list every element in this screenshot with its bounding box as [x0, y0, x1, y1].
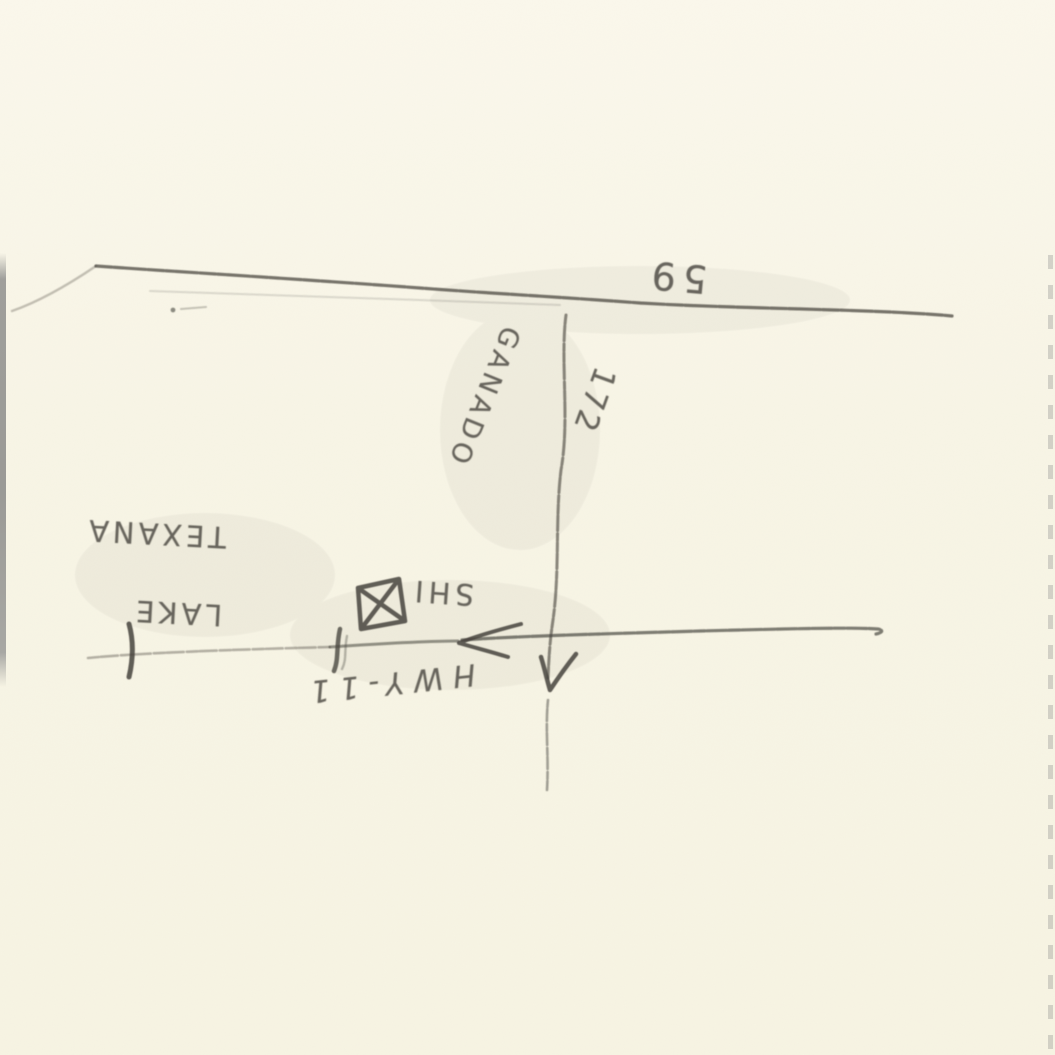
pencil-dot [171, 308, 176, 313]
lake-texana-line1: LAKE [131, 593, 223, 632]
building-label: SHI [409, 570, 475, 613]
scanned-pencil-map: 59 GANADO 172 LAKE TEXANA SHI HWY-11 [0, 0, 1055, 1055]
lake-texana-line2: TEXANA [84, 512, 227, 553]
lake-texana-label: LAKE TEXANA [78, 470, 282, 676]
highway-59-label: 59 [643, 248, 710, 305]
vertical-road-line-lower [547, 700, 548, 790]
